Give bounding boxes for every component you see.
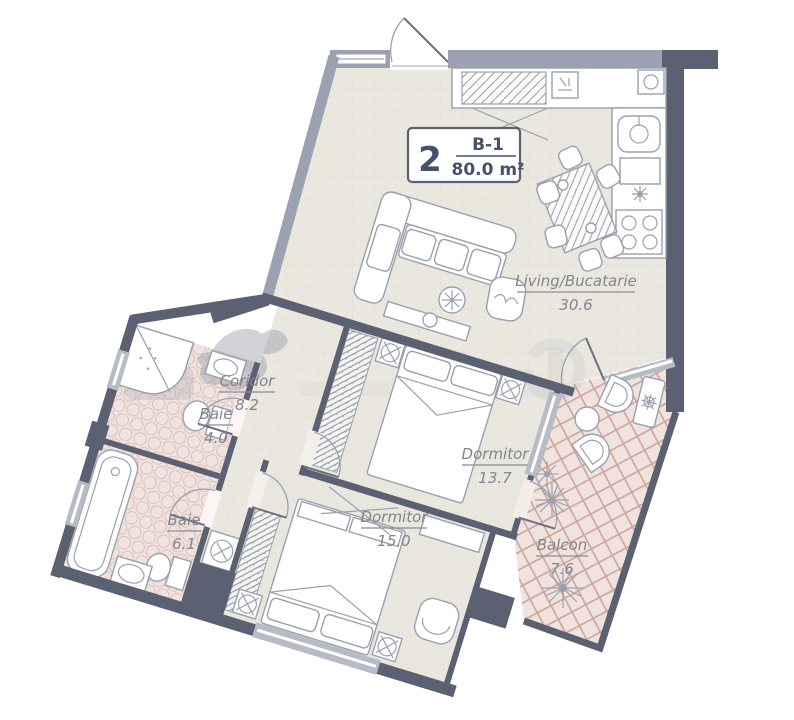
- plant-icon: [535, 462, 559, 486]
- svg-text:Baie: Baie: [200, 405, 233, 423]
- unit-badge: 2 B-1 80.0 m²: [408, 128, 525, 182]
- kitchen-sink-icon: [618, 116, 660, 152]
- svg-text:13.7: 13.7: [478, 469, 512, 487]
- cup-icon: [586, 223, 596, 233]
- svg-text:Baie: Baie: [168, 511, 201, 529]
- balcony-table-icon: [575, 407, 599, 431]
- svg-text:Balcon: Balcon: [537, 536, 588, 554]
- svg-text:8.2: 8.2: [235, 396, 259, 414]
- plant-icon: [535, 483, 569, 517]
- right-wall: [666, 50, 684, 412]
- svg-text:Living/Bucatarie: Living/Bucatarie: [515, 272, 637, 290]
- living-window-top: [336, 54, 386, 64]
- fridge-icon: [638, 70, 664, 94]
- svg-text:15.0: 15.0: [377, 532, 410, 550]
- kitchen-cabinet: [620, 158, 660, 184]
- entrance-door: [390, 18, 448, 70]
- svg-text:6.1: 6.1: [172, 535, 196, 553]
- cup-icon: [558, 180, 568, 190]
- svg-text:Dormitor: Dormitor: [462, 445, 530, 463]
- svg-text:Dormitor: Dormitor: [361, 508, 429, 526]
- unit-number: 2: [418, 140, 442, 180]
- unit-type: B-1: [472, 135, 504, 155]
- flower-decor-icon: [632, 186, 648, 202]
- cooktop-icon: [462, 72, 546, 104]
- small-appliance-icon: [552, 72, 578, 98]
- svg-text:Coridor: Coridor: [220, 372, 276, 390]
- unit-area: 80.0 m²: [451, 160, 524, 180]
- floor-plan-page: 2 B-1 80.0 m² Living/Bucatarie 30.6 Cori…: [0, 0, 794, 720]
- svg-text:7.6: 7.6: [550, 560, 574, 578]
- svg-text:30.6: 30.6: [559, 296, 592, 314]
- svg-text:4.0: 4.0: [204, 429, 228, 447]
- floor-plan-drawing: 2 B-1 80.0 m² Living/Bucatarie 30.6 Cori…: [0, 0, 794, 720]
- wall-step: [465, 586, 515, 629]
